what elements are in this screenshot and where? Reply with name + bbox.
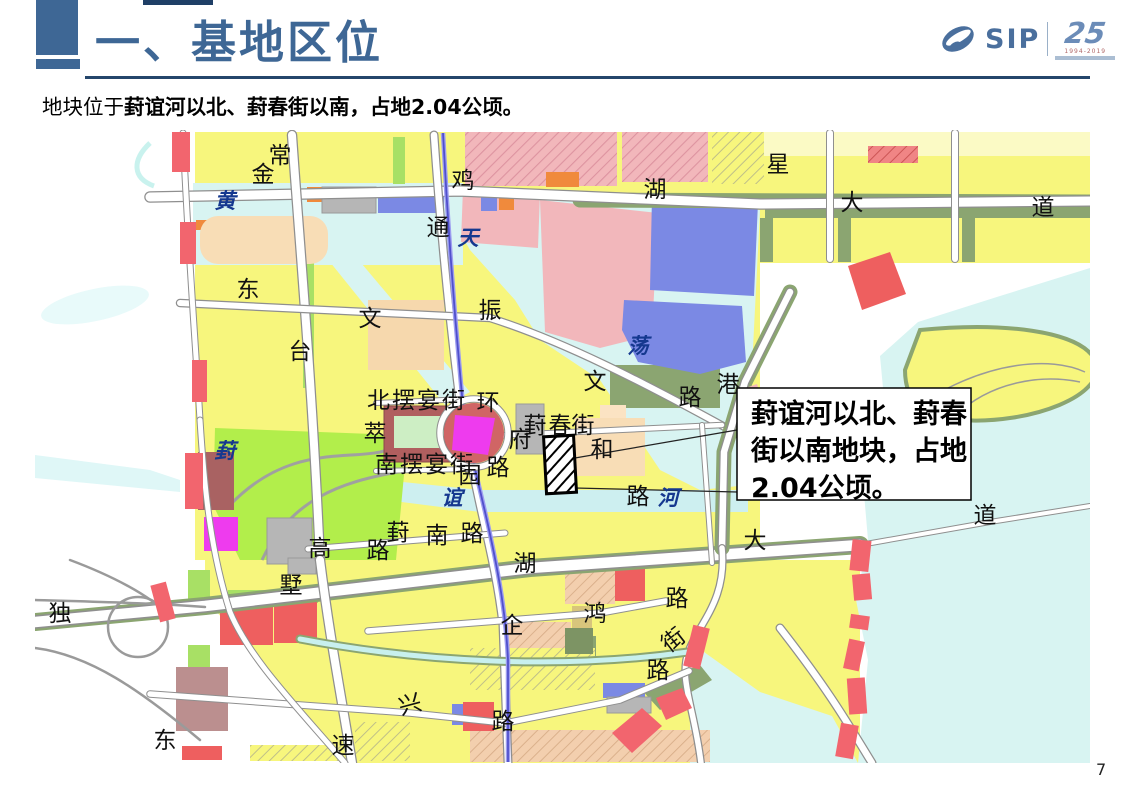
map-label: 路 xyxy=(461,521,484,547)
map-label: 路 xyxy=(492,709,515,735)
map-label: 黄 xyxy=(215,189,239,213)
map-label: 鸿 xyxy=(584,601,607,627)
map-label: 街 xyxy=(572,413,595,439)
header-underline xyxy=(85,76,1090,79)
map-label: 湖 xyxy=(514,551,537,577)
intro-prefix: 地块位于 xyxy=(42,95,124,119)
map-label: 文 xyxy=(359,306,382,332)
page-number: 7 xyxy=(1096,760,1106,779)
map-label: 南 xyxy=(426,523,449,549)
top-accent-bar xyxy=(143,0,213,5)
anniversary-small-text xyxy=(1055,56,1115,60)
page-title: 一、基地区位 xyxy=(95,6,383,71)
map-label: 高 xyxy=(309,536,332,562)
map-label: 企 xyxy=(501,613,524,639)
intro-text: 地块位于葑谊河以北、葑春街以南，占地2.04公顷。 xyxy=(42,90,523,120)
map-label: 道 xyxy=(974,503,997,529)
sip-swoosh-icon xyxy=(938,19,978,59)
map-label: 文 xyxy=(584,369,607,395)
header-accent-square xyxy=(36,0,78,55)
map-label: 金 xyxy=(252,162,275,188)
callout-text-line: 2.04公顷。 xyxy=(751,473,899,504)
map-label: 春 xyxy=(549,413,572,439)
map-label: 路 xyxy=(487,455,510,481)
anniversary-mark: 25 1994-2019 xyxy=(1055,19,1115,60)
map-label: 路 xyxy=(627,484,650,510)
map-label: 葑 xyxy=(387,520,410,546)
map-label: 东 xyxy=(154,728,177,754)
map-label: 路 xyxy=(666,586,689,612)
logo-divider xyxy=(1047,22,1048,56)
map-label: 环 xyxy=(477,390,500,416)
map-label: 港 xyxy=(717,372,740,398)
map-label: 鸡 xyxy=(452,168,475,194)
map-label: 台 xyxy=(289,339,312,365)
map-label: 葑 xyxy=(524,413,547,439)
sip-logo-text: SIP xyxy=(985,24,1040,55)
slide: 一、基地区位 SIP 25 1994-2019 地块位于葑谊河以北、葑春街以南，… xyxy=(0,0,1123,794)
map-label: 通 xyxy=(427,215,450,241)
land-use-map: 葑谊河以北、葑春街以南地块，占地2.04公顷。 常金鸡湖星大道黄通天东振文台荡文… xyxy=(35,130,1090,763)
map-label: 天 xyxy=(458,226,482,250)
map-label: 大 xyxy=(841,190,864,216)
callout-text-line: 街以南地块，占地 xyxy=(750,436,967,467)
map-label: 速 xyxy=(332,733,355,759)
map-label: 路 xyxy=(679,385,702,411)
map-label: 道 xyxy=(1032,195,1055,221)
site-parcel-highlight xyxy=(544,435,577,493)
intro-highlight: 葑谊河以北、葑春街以南，占地2.04公顷。 xyxy=(124,95,523,119)
map-label: 东 xyxy=(237,277,260,303)
header-accent-bar xyxy=(36,59,80,69)
callout-text-line: 葑谊河以北、葑春 xyxy=(751,398,968,430)
map-label: 和 xyxy=(591,437,614,463)
map-label: 谊 xyxy=(442,486,466,510)
anniversary-number: 25 xyxy=(1063,19,1107,48)
map-label: 湖 xyxy=(644,177,667,203)
sip-logo: SIP 25 1994-2019 xyxy=(938,16,1115,62)
map-label: 振 xyxy=(479,298,502,324)
map-label: 独 xyxy=(49,601,72,627)
map-label: 萃 xyxy=(364,421,387,447)
map-label: 大 xyxy=(744,528,767,554)
map-label: 星 xyxy=(767,152,790,178)
map-label: 路 xyxy=(647,658,670,684)
map-label: 北摆宴街 xyxy=(367,388,467,414)
map-label: 墅 xyxy=(280,573,303,599)
